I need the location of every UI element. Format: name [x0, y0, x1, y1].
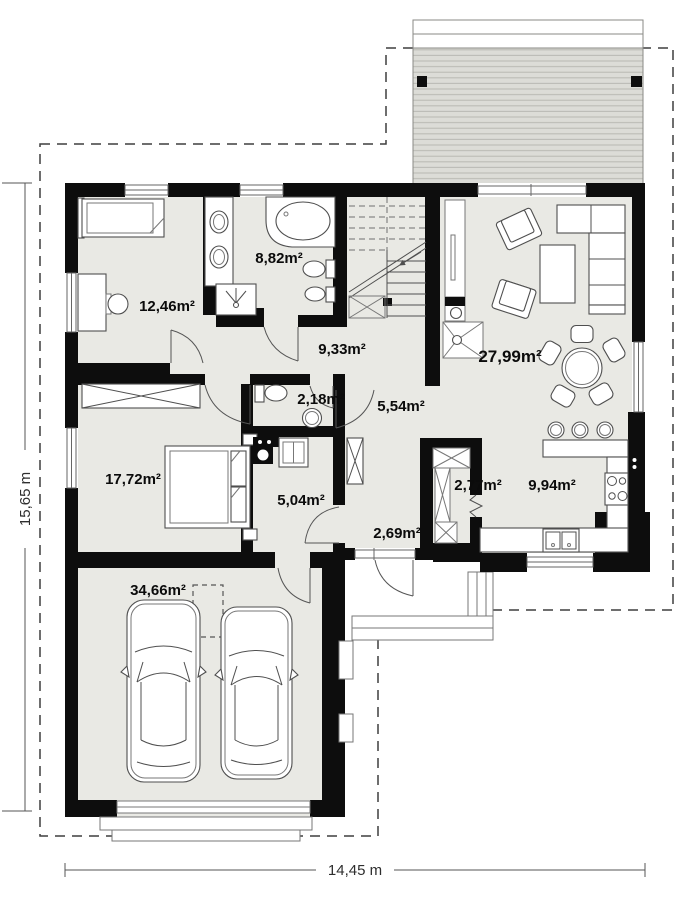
coffee-table-icon [540, 245, 575, 303]
window-bathroom-top [240, 183, 283, 197]
terrace-door [478, 183, 586, 197]
room-label-living-room: 27,99m² [478, 347, 542, 366]
garage-steps [100, 817, 312, 841]
single-bed-icon [78, 198, 164, 238]
room-label-bedroom-2: 17,72m² [105, 471, 161, 488]
shower-icon [216, 284, 256, 315]
garage-door [117, 801, 310, 813]
room-label-corridor: 5,54m² [377, 398, 425, 415]
terrace-post [417, 76, 427, 87]
terrace-deck [413, 48, 643, 185]
room-label-wc: 2,18m² [297, 391, 345, 408]
window-bedroom2-left [65, 428, 78, 488]
wc-toilet-icon [255, 385, 287, 402]
room-label-utility: 5,04m² [277, 492, 325, 509]
car-icon [215, 607, 298, 779]
kitchen-sink-icon [543, 529, 579, 552]
room-label-hall: 9,33m² [318, 341, 366, 358]
car-icon [121, 600, 206, 782]
wardrobe-icon [82, 384, 200, 408]
window-living-right [632, 342, 645, 412]
terrace-post [631, 76, 642, 87]
washing-machine-icon [279, 438, 308, 467]
window-bedroom1-left [65, 273, 78, 332]
tv-shelf-icon [445, 200, 465, 297]
room-label-entry: 2,69m² [373, 525, 421, 542]
floor-plan: 12,46m² 8,82m² 9,33m² 27,99m² 2,18m² 5,5… [0, 0, 693, 900]
entry-door-window [355, 548, 415, 560]
window-bedroom1-top [125, 183, 168, 197]
double-bed-icon [165, 434, 257, 540]
room-label-garage: 34,66m² [130, 582, 186, 599]
stove-icon [605, 473, 628, 505]
room-label-kitchen: 9,94m² [528, 477, 576, 494]
room-label-bathroom: 8,82m² [255, 250, 303, 267]
dimension-height: 15,65 m [2, 183, 34, 811]
bathtub-icon [266, 197, 335, 247]
vanity-sinks-icon [205, 197, 233, 286]
bidet-icon [305, 287, 335, 302]
toilet-icon [303, 260, 335, 278]
wc-sink-icon [303, 409, 322, 428]
corridor-closet-icon [347, 438, 363, 484]
room-label-pantry: 2,77m² [454, 477, 502, 494]
terrace [413, 20, 643, 185]
dimension-width: 14,45 m [65, 862, 645, 879]
room-label-bedroom-1: 12,46m² [139, 298, 195, 315]
dimension-width-label: 14,45 m [328, 862, 382, 879]
window-kitchen-bottom [527, 553, 593, 572]
dimension-height-label: 15,65 m [17, 472, 34, 526]
